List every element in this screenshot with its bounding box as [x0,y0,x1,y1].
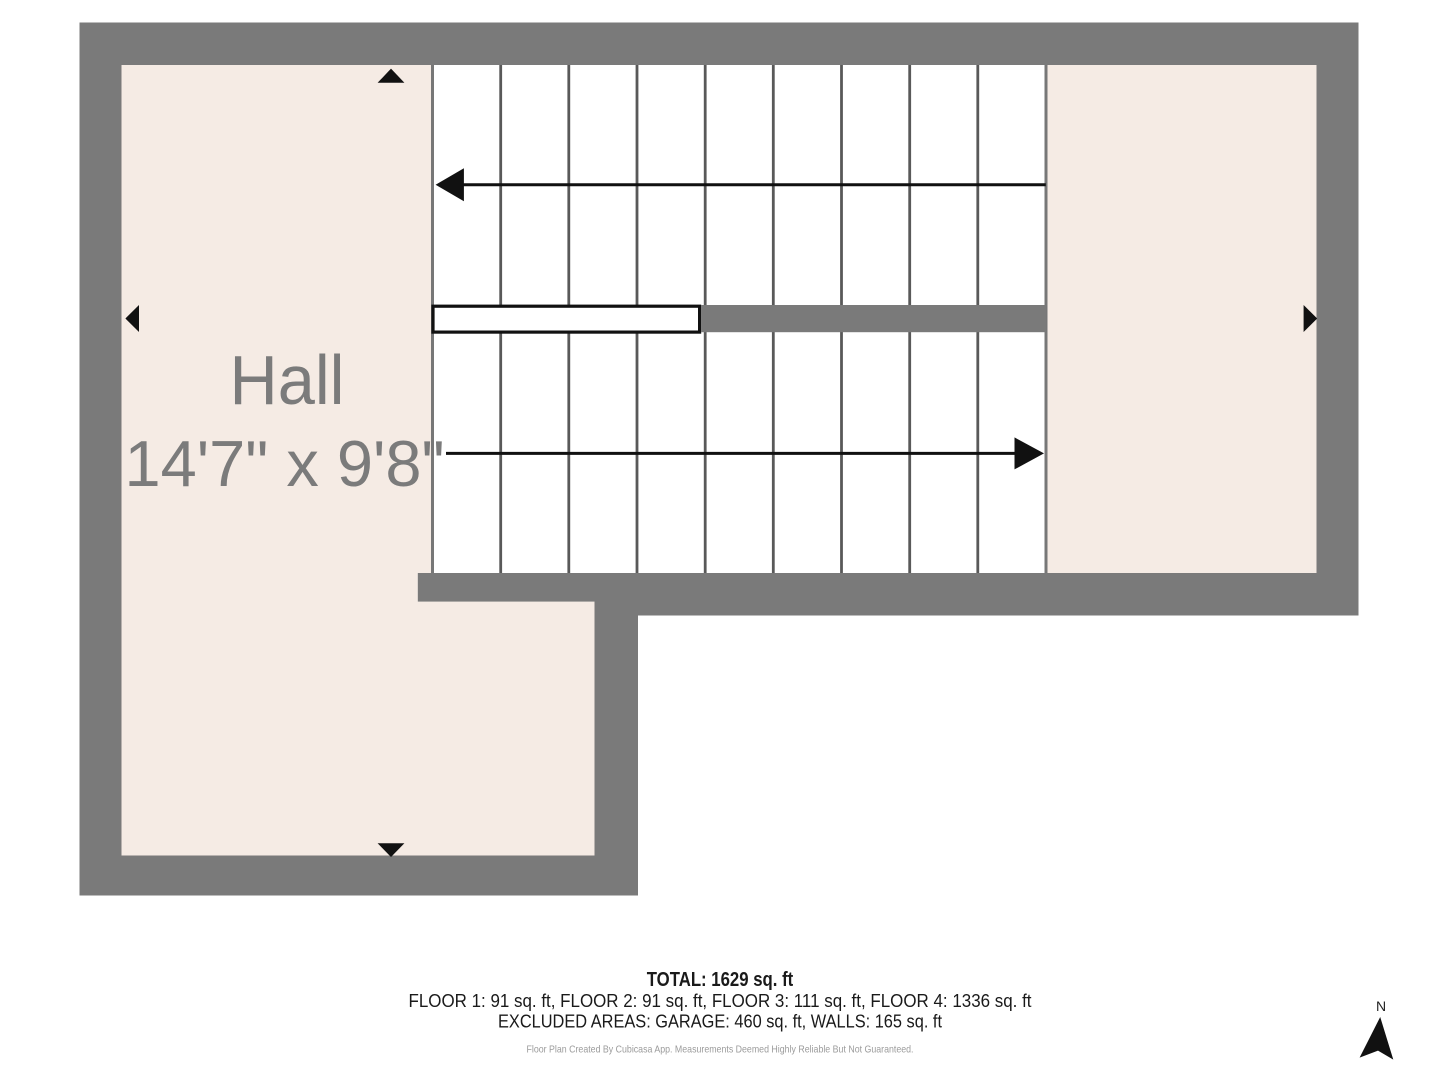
svg-text:TOTAL: 1629 sq. ft: TOTAL: 1629 sq. ft [647,969,794,991]
svg-text:FLOOR 1: 91 sq. ft, FLOOR 2: 9: FLOOR 1: 91 sq. ft, FLOOR 2: 91 sq. ft, … [409,990,1032,1011]
svg-text:14'7" x 9'8": 14'7" x 9'8" [125,428,445,500]
svg-text:Floor Plan Created By Cubicasa: Floor Plan Created By Cubicasa App. Meas… [527,1044,914,1056]
svg-text:EXCLUDED AREAS: GARAGE: 460 sq: EXCLUDED AREAS: GARAGE: 460 sq. ft, WALL… [498,1011,942,1032]
svg-text:N: N [1376,998,1386,1014]
svg-text:Hall: Hall [230,341,345,419]
